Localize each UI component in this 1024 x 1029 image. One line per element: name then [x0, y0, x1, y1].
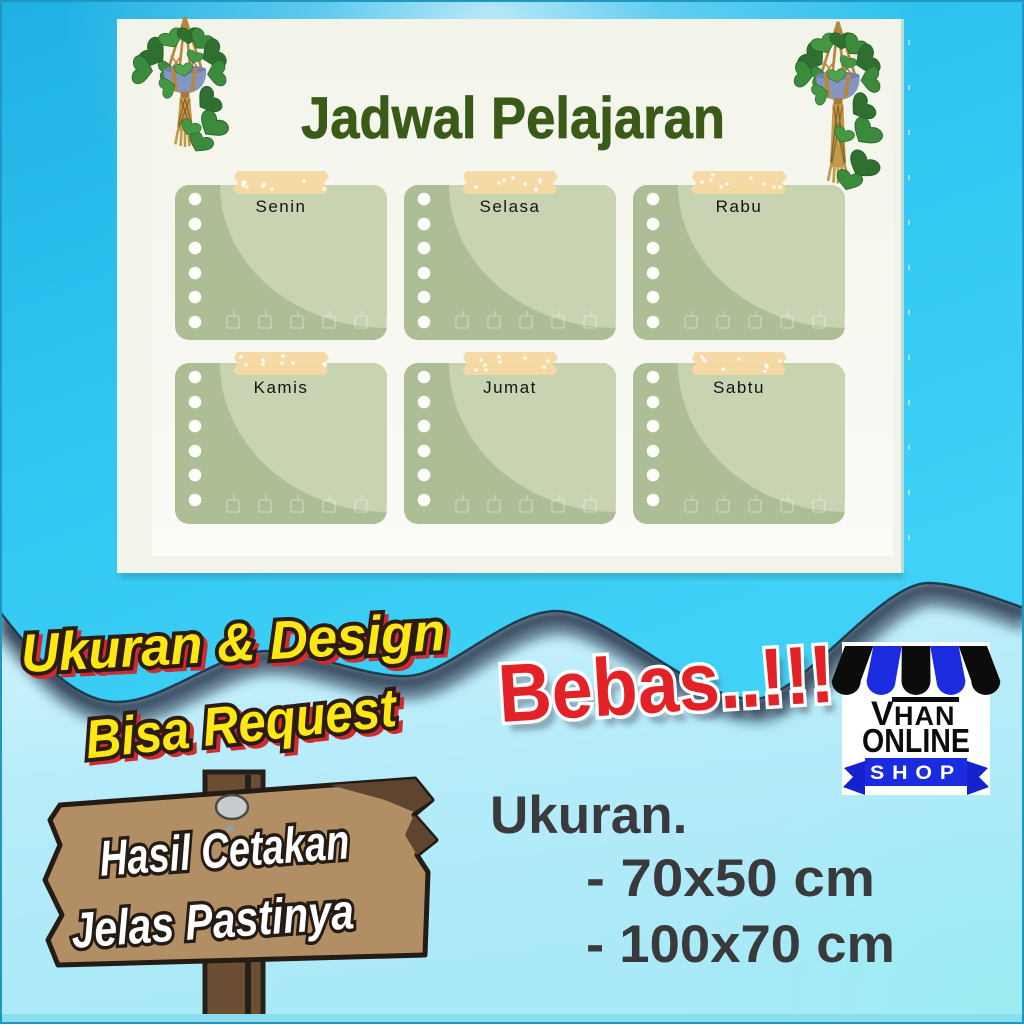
svg-text:Sabtu: Sabtu: [713, 378, 765, 397]
svg-text:Senin: Senin: [256, 197, 307, 216]
svg-text:Rabu: Rabu: [716, 197, 763, 216]
svg-text:Jadwal Pelajaran: Jadwal Pelajaran: [301, 86, 725, 151]
svg-text:SHOP: SHOP: [870, 763, 962, 784]
svg-text:- 100x70 cm: - 100x70 cm: [586, 915, 895, 974]
svg-text:Kamis: Kamis: [254, 378, 309, 397]
svg-text:- 70x50 cm: - 70x50 cm: [586, 849, 875, 908]
svg-text:ONLINE: ONLINE: [862, 722, 970, 759]
svg-text:Jumat: Jumat: [483, 378, 537, 397]
svg-text:Selasa: Selasa: [480, 197, 541, 216]
svg-text:Ukuran.: Ukuran.: [490, 786, 687, 845]
